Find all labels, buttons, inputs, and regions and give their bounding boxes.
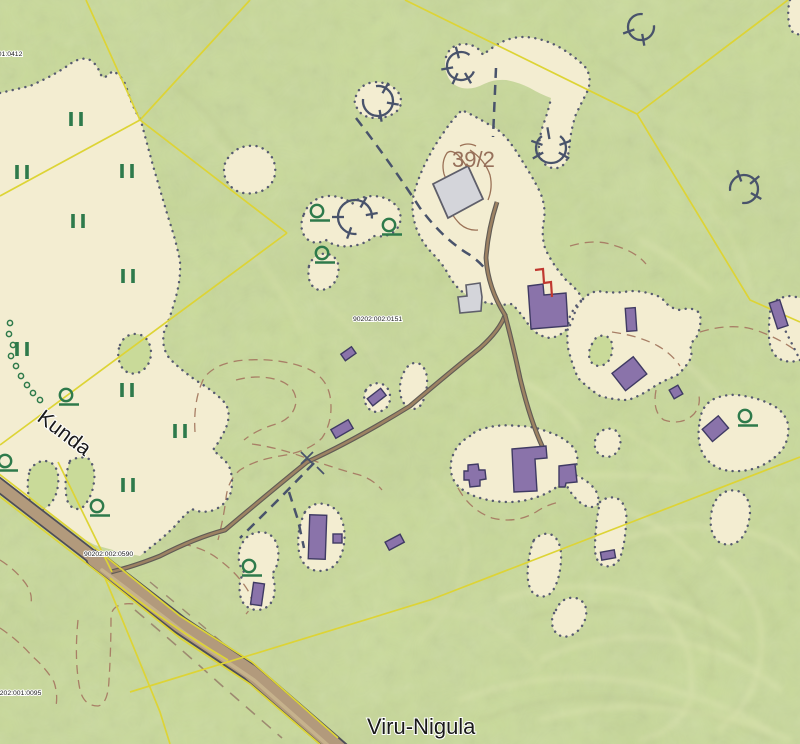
svg-text:Viru-Nigula: Viru-Nigula [367, 714, 476, 739]
svg-text:90202:002:0590: 90202:002:0590 [84, 551, 133, 558]
svg-text:39/2: 39/2 [452, 147, 495, 172]
svg-text:001:0412: 001:0412 [0, 51, 23, 58]
svg-text:90202:002:0151: 90202:002:0151 [353, 316, 402, 323]
svg-text:0202:001:0095: 0202:001:0095 [0, 690, 42, 697]
